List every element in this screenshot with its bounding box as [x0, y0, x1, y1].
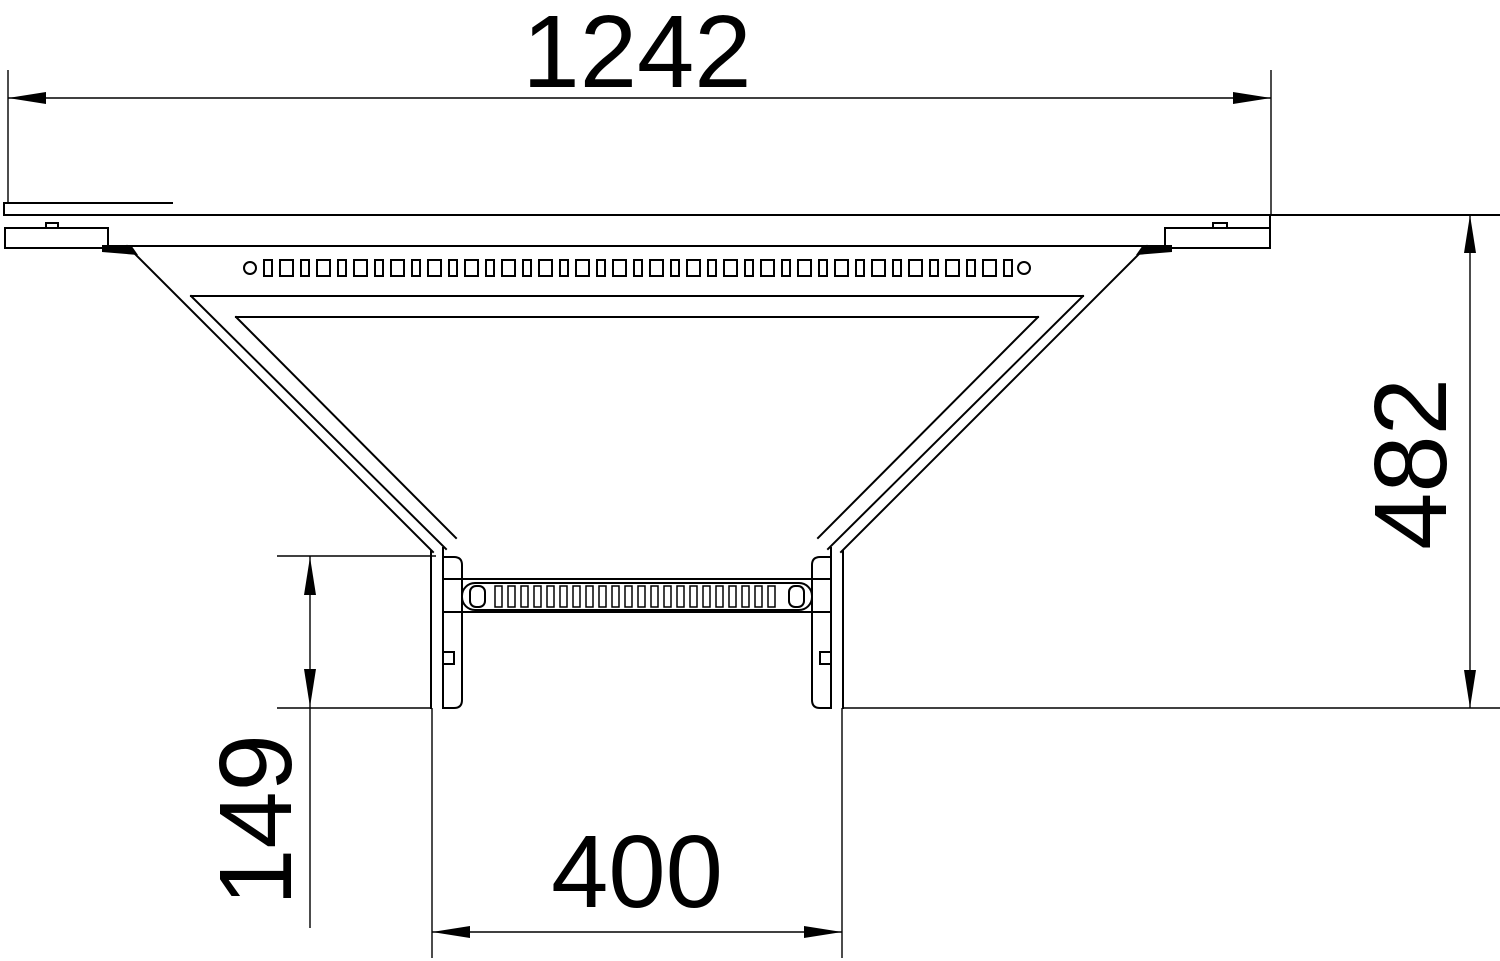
- right-diagonal-rail: [818, 246, 1147, 552]
- perforation-slot: [690, 586, 697, 607]
- perforation-slot: [625, 586, 632, 607]
- arrowhead-right: [1233, 92, 1271, 104]
- perforation-slot: [338, 260, 346, 276]
- perforation-slot: [677, 586, 684, 607]
- right-coupler-bracket: [1136, 216, 1270, 255]
- perforation-slot: [687, 260, 700, 276]
- arrowhead-top: [1464, 215, 1476, 253]
- perforation-slot: [893, 260, 901, 276]
- branch-left-rail: [431, 548, 462, 708]
- perforation-hole-right: [1018, 262, 1030, 274]
- perforation-slot: [742, 586, 749, 607]
- arrowhead-top: [304, 557, 316, 595]
- perforation-slot: [573, 586, 580, 607]
- perforation-slot: [412, 260, 420, 276]
- perforation-slot: [465, 260, 478, 276]
- perforation-slot: [671, 260, 679, 276]
- perforation-slot: [502, 260, 515, 276]
- perforation-slot: [612, 586, 619, 607]
- perforation-hole-left: [244, 262, 256, 274]
- perforation-slot: [317, 260, 330, 276]
- perforation-slot: [539, 260, 552, 276]
- perforation-slot: [872, 260, 885, 276]
- perforation-slot: [856, 260, 864, 276]
- perforation-slot: [1004, 260, 1012, 276]
- perforation-slots: [264, 260, 1012, 276]
- perforation-slot: [650, 260, 663, 276]
- perforation-slot: [576, 260, 589, 276]
- arrowhead-bottom: [1464, 670, 1476, 708]
- top-perforation-row: [244, 260, 1030, 276]
- left-bracket-tab: [46, 223, 58, 228]
- right-bracket-tab: [1213, 223, 1227, 228]
- dimension-top-width: 1242: [8, 0, 1271, 214]
- left-bracket-body: [5, 228, 108, 248]
- dimension-right-height: 482: [843, 215, 1500, 708]
- perforation-slot: [703, 586, 710, 607]
- perforation-slot: [724, 260, 737, 276]
- perforation-slot: [755, 586, 762, 607]
- perforation-slot: [375, 260, 383, 276]
- branch-left-notch: [443, 652, 454, 664]
- left-coupler-bracket: [5, 223, 138, 255]
- right-bracket-body: [1165, 228, 1270, 248]
- perforation-slot: [547, 586, 554, 607]
- perforation-slot: [909, 260, 922, 276]
- perforation-slot: [946, 260, 959, 276]
- perforation-slot: [599, 586, 606, 607]
- perforation-slot: [835, 260, 848, 276]
- arrowhead-bottom: [304, 669, 316, 707]
- perforation-slot: [729, 586, 736, 607]
- right-diagonal-inner-edge: [818, 317, 1038, 538]
- perforation-slot: [428, 260, 441, 276]
- rung-perforation-slots: [495, 586, 775, 607]
- perforation-slot: [560, 586, 567, 607]
- rung-end-slot-right: [789, 586, 804, 607]
- perforation-slot: [523, 260, 531, 276]
- perforation-slot: [301, 260, 309, 276]
- perforation-slot: [449, 260, 457, 276]
- dim-label-bottom-width: 400: [551, 814, 723, 929]
- left-diagonal-outer-edge: [127, 246, 433, 552]
- dimension-left-offset: 149: [198, 556, 436, 928]
- perforation-slot: [534, 586, 541, 607]
- technical-drawing: 1242 482 149 400: [0, 0, 1500, 961]
- perforation-slot: [521, 586, 528, 607]
- arrowhead-left: [432, 926, 470, 938]
- arrowhead-right: [804, 926, 842, 938]
- rung-end-slot-left: [470, 586, 485, 607]
- perforation-slot: [486, 260, 494, 276]
- perforation-slot: [651, 586, 658, 607]
- perforation-slot: [782, 260, 790, 276]
- ladder-rung: [445, 579, 829, 612]
- perforation-slot: [768, 586, 775, 607]
- perforation-slot: [761, 260, 774, 276]
- left-diagonal-rail: [127, 246, 456, 552]
- perforation-slot: [798, 260, 811, 276]
- perforation-slot: [613, 260, 626, 276]
- perforation-slot: [745, 260, 753, 276]
- perforation-slot: [638, 586, 645, 607]
- perforation-slot: [586, 586, 593, 607]
- right-diagonal-outer-edge: [841, 246, 1147, 552]
- perforation-slot: [280, 260, 293, 276]
- perforation-slot: [597, 260, 605, 276]
- dimension-bottom-width: 400: [432, 708, 842, 958]
- dim-label-top-width: 1242: [522, 0, 751, 109]
- perforation-slot: [664, 586, 671, 607]
- perforation-slot: [391, 260, 404, 276]
- dim-label-right-height: 482: [1353, 378, 1468, 550]
- perforation-slot: [819, 260, 827, 276]
- perforation-slot: [634, 260, 642, 276]
- perforation-slot: [930, 260, 938, 276]
- perforation-slot: [264, 260, 272, 276]
- perforation-slot: [716, 586, 723, 607]
- perforation-slot: [508, 586, 515, 607]
- drawing-canvas: 1242 482 149 400: [0, 0, 1500, 961]
- dim-label-left-offset: 149: [198, 734, 313, 906]
- perforation-slot: [708, 260, 716, 276]
- branch-right-notch: [820, 652, 831, 664]
- perforation-slot: [967, 260, 975, 276]
- perforation-slot: [495, 586, 502, 607]
- right-diagonal-fold-edge: [828, 296, 1083, 549]
- perforation-slot: [560, 260, 568, 276]
- left-diagonal-inner-edge: [236, 317, 456, 538]
- perforation-slot: [983, 260, 996, 276]
- perforation-slot: [354, 260, 367, 276]
- arrowhead-left: [8, 92, 46, 104]
- left-diagonal-fold-edge: [191, 296, 446, 549]
- branch-right-rail: [812, 548, 843, 708]
